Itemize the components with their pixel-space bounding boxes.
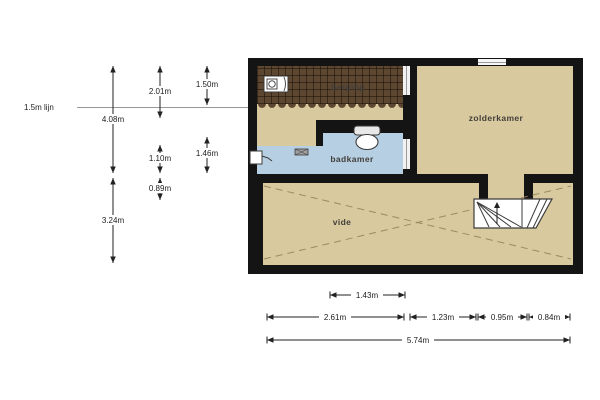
dim-1.10m: 1.10m: [145, 145, 176, 173]
berging-storage-floor: [257, 66, 403, 104]
svg-text:0.95m: 0.95m: [491, 313, 514, 322]
dim-1.50m: 1.50m: [192, 66, 223, 105]
badkamer-floor-left: [257, 146, 323, 174]
reference-line: 1.5m lijn: [24, 103, 248, 112]
room-label-zolderkamer: zolderkamer: [469, 113, 523, 123]
left-lower-wall: [257, 174, 263, 265]
dim-0.84m: 0.84m: [529, 312, 570, 322]
svg-text:4.08m: 4.08m: [102, 115, 125, 124]
dim-2.01m: 2.01m: [145, 66, 176, 118]
zolder-bottom-wall-left: [417, 174, 488, 183]
dim-1.23m: 1.23m: [410, 312, 476, 322]
berging-roofline-edge: [257, 104, 403, 109]
dim-5.74m: 5.74m: [267, 335, 570, 345]
svg-text:1.43m: 1.43m: [356, 291, 379, 300]
dim-4.08m: 4.08m: [98, 66, 129, 173]
badkamer-top-wall: [316, 120, 403, 133]
dim-1.43m: 1.43m: [330, 290, 405, 300]
floorplan-page: berging zolderkamer badkamer vide 1.5m l…: [0, 0, 600, 400]
svg-text:2.01m: 2.01m: [149, 87, 172, 96]
svg-text:0.89m: 0.89m: [149, 184, 172, 193]
svg-text:5.74m: 5.74m: [407, 336, 430, 345]
badkamer-corner-wall: [316, 120, 323, 146]
svg-text:1.10m: 1.10m: [149, 154, 172, 163]
room-label-berging: berging: [331, 82, 365, 92]
door-badkamer: [403, 139, 410, 169]
stairwell-wall-left: [479, 174, 488, 200]
dim-1.46m: 1.46m: [192, 137, 223, 173]
room-label-vide: vide: [333, 217, 352, 227]
door-berging: [403, 66, 410, 95]
svg-text:3.24m: 3.24m: [102, 216, 125, 225]
dim-2.61m: 2.61m: [267, 312, 404, 322]
reference-line-label: 1.5m lijn: [24, 103, 54, 112]
svg-text:1.50m: 1.50m: [196, 80, 219, 89]
svg-text:1.23m: 1.23m: [432, 313, 455, 322]
room-label-badkamer: badkamer: [330, 154, 373, 164]
svg-text:1.46m: 1.46m: [196, 149, 219, 158]
svg-text:0.84m: 0.84m: [538, 313, 561, 322]
dim-0.89m: 0.89m: [145, 178, 176, 200]
dim-3.24m: 3.24m: [98, 178, 129, 263]
window: [478, 59, 506, 65]
svg-text:2.61m: 2.61m: [324, 313, 347, 322]
dim-0.95m: 0.95m: [478, 312, 527, 322]
stairwell-wall-right: [524, 174, 533, 200]
badkamer-bottom-wall: [248, 174, 417, 183]
